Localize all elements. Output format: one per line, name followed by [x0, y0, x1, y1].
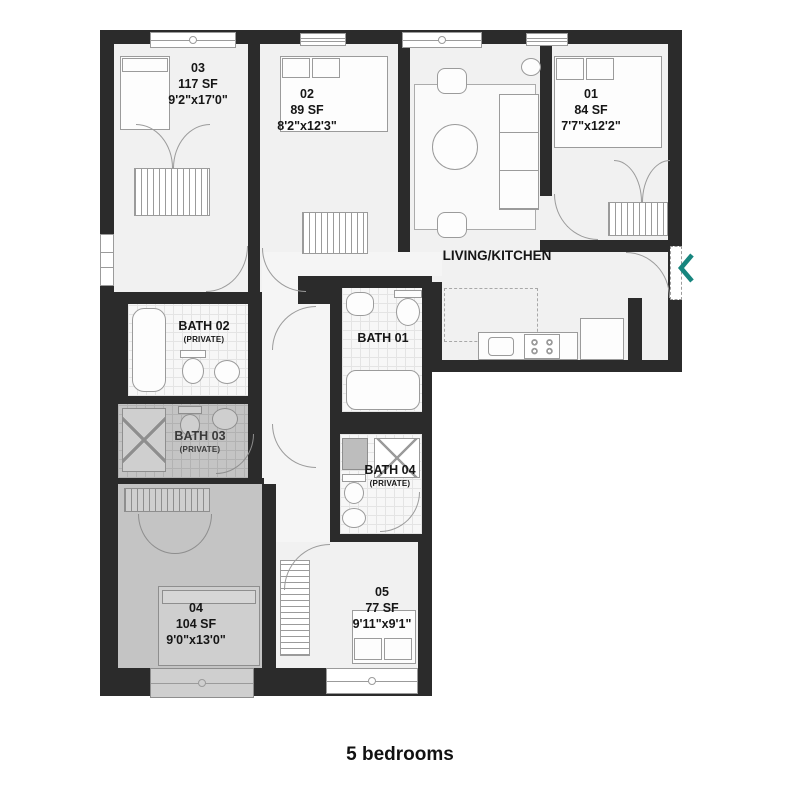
- sink: [342, 508, 366, 528]
- wall: [118, 396, 256, 404]
- room-01-label: 01 84 SF 7'7"x12'2": [561, 86, 621, 134]
- pillow: [122, 58, 168, 72]
- door-opening: [540, 196, 552, 240]
- window: [150, 32, 236, 48]
- chevron-left-icon: [676, 252, 698, 284]
- bath-private-note: (PRIVATE): [174, 444, 225, 455]
- hallway-floor: [330, 252, 442, 276]
- room-dimensions: 9'0"x13'0": [166, 632, 226, 648]
- room-area: 84 SF: [561, 102, 621, 118]
- window: [326, 668, 418, 694]
- window: [150, 668, 254, 698]
- kitchen-sink: [488, 337, 514, 356]
- closet: [608, 202, 668, 236]
- pillow: [556, 58, 584, 80]
- room-dimensions: 9'11"x9'1": [353, 616, 412, 632]
- toilet-tank: [342, 474, 366, 482]
- sink: [212, 408, 238, 430]
- room-area: 104 SF: [166, 616, 226, 632]
- pillow: [586, 58, 614, 80]
- bath-name: BATH 01: [357, 330, 408, 346]
- room-03-label: 03 117 SF 9'2"x17'0": [168, 60, 228, 108]
- window: [100, 234, 114, 286]
- bath-private-note: (PRIVATE): [178, 334, 229, 345]
- wall: [540, 240, 682, 252]
- toilet: [344, 482, 364, 504]
- plant: [521, 58, 541, 76]
- bath-private-note: (PRIVATE): [364, 478, 415, 489]
- pillow: [384, 638, 412, 660]
- bath-03-label: BATH 03 (PRIVATE): [174, 428, 225, 455]
- refrigerator: [580, 318, 624, 360]
- window: [402, 32, 482, 48]
- armchair: [437, 212, 467, 238]
- room-number: 02: [277, 86, 337, 102]
- wall: [628, 298, 642, 360]
- wall: [398, 30, 410, 252]
- bath-01-label: BATH 01: [357, 330, 408, 346]
- window: [526, 33, 568, 46]
- toilet-tank: [180, 350, 206, 358]
- toilet: [396, 298, 420, 326]
- closet: [302, 212, 368, 254]
- room-dimensions: 7'7"x12'2": [561, 118, 621, 134]
- pillow: [282, 58, 310, 78]
- room-area: 77 SF: [353, 600, 412, 616]
- wall: [248, 292, 262, 484]
- closet: [124, 488, 210, 512]
- room-05-label: 05 77 SF 9'11"x9'1": [353, 584, 412, 632]
- toilet-tank: [178, 406, 202, 414]
- bath-name: BATH 02: [178, 318, 229, 334]
- plan-caption: 5 bedrooms: [346, 744, 454, 766]
- closet: [134, 168, 210, 216]
- wall: [540, 30, 552, 196]
- wall: [118, 478, 264, 484]
- floor-plan-page: 03 117 SF 9'2"x17'0" 02 89 SF 8'2"x12'3"…: [0, 0, 800, 800]
- round-table: [432, 124, 478, 170]
- room-04-label: 04 104 SF 9'0"x13'0": [166, 600, 226, 648]
- room-dimensions: 8'2"x12'3": [277, 118, 337, 134]
- bath-name: BATH 03: [174, 428, 225, 444]
- sofa: [499, 94, 539, 210]
- carousel-previous-button[interactable]: [676, 252, 698, 284]
- bath-04-label: BATH 04 (PRIVATE): [364, 462, 415, 489]
- bath-name: BATH 04: [364, 462, 415, 478]
- room-number: 05: [353, 584, 412, 600]
- room-number: 03: [168, 60, 228, 76]
- room-area: 117 SF: [168, 76, 228, 92]
- room-number: 04: [166, 600, 226, 616]
- wall: [262, 484, 276, 696]
- bathtub: [346, 370, 420, 410]
- toilet-tank: [394, 290, 422, 298]
- shower: [122, 408, 166, 472]
- living-kitchen-label: LIVING/KITCHEN: [443, 248, 552, 263]
- wall: [100, 292, 248, 304]
- bath-02-label: BATH 02 (PRIVATE): [178, 318, 229, 345]
- room-02-label: 02 89 SF 8'2"x12'3": [277, 86, 337, 134]
- room-number: 01: [561, 86, 621, 102]
- pillow: [354, 638, 382, 660]
- room-area: 89 SF: [277, 102, 337, 118]
- sink: [346, 292, 374, 316]
- toilet: [182, 358, 204, 384]
- armchair: [437, 68, 467, 94]
- sink: [214, 360, 240, 384]
- window: [300, 33, 346, 46]
- pillow: [312, 58, 340, 78]
- stove: [524, 334, 560, 359]
- room-dimensions: 9'2"x17'0": [168, 92, 228, 108]
- bathtub: [132, 308, 166, 392]
- wall: [248, 30, 260, 252]
